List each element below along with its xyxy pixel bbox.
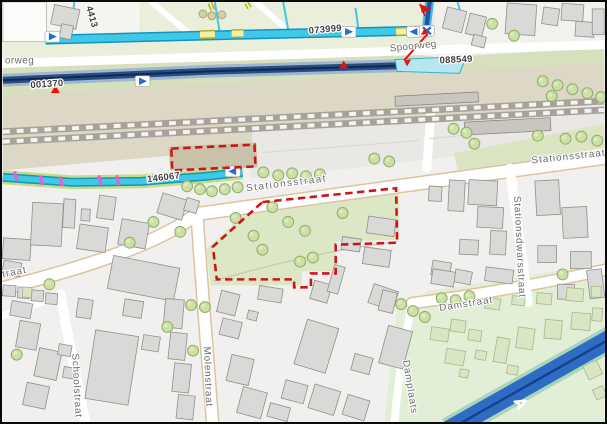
building — [59, 24, 74, 40]
tree-icon — [199, 302, 210, 313]
building — [10, 300, 33, 318]
building — [85, 330, 139, 405]
tree-highlight — [302, 227, 306, 231]
tree-highlight — [339, 210, 343, 214]
tree-icon — [369, 153, 380, 164]
tree-icon — [396, 299, 407, 310]
flow-arrow-icon — [341, 26, 356, 37]
tree-highlight — [598, 94, 602, 98]
tree-highlight — [584, 90, 588, 94]
building — [444, 348, 465, 366]
building — [351, 353, 374, 374]
tree-highlight — [463, 129, 467, 133]
tree-icon — [469, 138, 480, 149]
tree-highlight — [559, 271, 563, 275]
tree-highlight — [201, 304, 205, 308]
building — [141, 335, 160, 352]
tree-icon — [148, 216, 159, 227]
building — [308, 384, 341, 416]
tree-highlight — [208, 188, 212, 192]
tree-icon — [532, 130, 543, 141]
building — [468, 180, 498, 206]
weir-marker — [41, 175, 43, 185]
weir-marker — [99, 175, 101, 185]
tree-icon — [509, 30, 520, 41]
building — [63, 199, 76, 228]
waterway-id-label: 088549 — [439, 53, 473, 66]
tree-highlight — [371, 155, 375, 159]
building — [267, 403, 291, 422]
tree-icon — [461, 127, 472, 138]
building — [448, 180, 465, 211]
building — [342, 394, 370, 421]
building — [575, 21, 595, 37]
tree-icon — [552, 80, 563, 91]
tree-icon — [384, 156, 395, 167]
tree-icon — [248, 230, 259, 241]
building — [22, 287, 32, 298]
street-label: Schoolstraat — [69, 353, 83, 418]
tree-highlight — [190, 347, 194, 351]
building — [468, 329, 482, 342]
tree-highlight — [386, 158, 390, 162]
building — [562, 206, 588, 238]
tree-highlight — [554, 82, 558, 86]
tree-icon — [592, 135, 603, 146]
tree-highlight — [197, 186, 201, 190]
building — [505, 3, 537, 36]
building — [430, 327, 449, 342]
weir-marker — [15, 171, 17, 181]
building — [176, 394, 195, 419]
building — [538, 246, 557, 263]
tree-highlight — [562, 135, 566, 139]
building — [123, 299, 144, 319]
tree-highlight — [539, 78, 543, 82]
tree-highlight — [260, 169, 264, 173]
building — [226, 354, 254, 385]
building — [490, 230, 507, 255]
tree-icon — [219, 184, 230, 195]
tree-icon — [408, 306, 419, 317]
tree-icon — [188, 345, 199, 356]
map-canvas[interactable]: orweg0013704413073999Spoorweg08854914606… — [2, 2, 605, 422]
building — [592, 308, 603, 322]
tree-icon — [295, 256, 306, 267]
bush-icon — [218, 11, 226, 19]
tree-highlight — [188, 302, 192, 306]
building — [450, 319, 466, 333]
building — [81, 209, 91, 221]
tree-icon — [232, 182, 243, 193]
tree-icon — [337, 208, 348, 219]
building — [16, 320, 41, 350]
tree-icon — [567, 84, 578, 95]
building — [76, 298, 93, 319]
building — [45, 293, 58, 305]
tree-icon — [186, 300, 197, 311]
tree-highlight — [269, 204, 273, 208]
tree-icon — [582, 88, 593, 99]
map-viewport[interactable]: orweg0013704413073999Spoorweg08854914606… — [0, 0, 607, 424]
tree-highlight — [594, 137, 598, 141]
building — [77, 224, 109, 253]
tree-highlight — [289, 170, 293, 174]
tree-icon — [175, 226, 186, 237]
tree-highlight — [471, 140, 475, 144]
building — [535, 180, 561, 216]
building — [157, 193, 188, 220]
tree-icon — [195, 184, 206, 195]
tree-icon — [537, 76, 548, 87]
tree-icon — [182, 181, 193, 192]
tree-highlight — [409, 308, 413, 312]
building — [172, 363, 192, 393]
building — [2, 238, 31, 261]
tree-highlight — [177, 228, 181, 232]
tree-highlight — [250, 232, 254, 236]
tree-icon — [267, 202, 278, 213]
street-label: Molenstraat — [201, 346, 214, 407]
building — [544, 319, 562, 339]
flow-arrow-icon — [45, 31, 60, 42]
tree-icon — [448, 123, 459, 134]
building — [591, 286, 601, 297]
tree-highlight — [150, 218, 154, 222]
building — [485, 267, 514, 284]
street-label: orweg — [5, 55, 34, 66]
tree-highlight — [234, 184, 238, 188]
building — [475, 350, 487, 361]
bush-icon — [208, 12, 216, 20]
tree-icon — [487, 18, 498, 29]
building — [247, 310, 259, 321]
building — [542, 7, 560, 26]
tree-icon — [560, 133, 571, 144]
tree-icon — [419, 312, 430, 323]
building — [219, 318, 242, 339]
weir-marker — [60, 176, 62, 186]
tree-highlight — [184, 183, 188, 187]
building — [2, 285, 16, 297]
tree-highlight — [126, 239, 130, 243]
tree-highlight — [466, 293, 470, 297]
tree-icon — [257, 244, 268, 255]
building — [362, 247, 391, 267]
tree-highlight — [309, 254, 313, 258]
building — [107, 255, 180, 301]
tree-icon — [546, 91, 557, 102]
building — [566, 288, 584, 302]
tree-highlight — [13, 351, 17, 355]
building — [294, 319, 339, 373]
building — [516, 327, 536, 350]
weir-marker — [117, 175, 119, 185]
tree-highlight — [438, 295, 442, 299]
tree-icon — [576, 131, 587, 142]
flow-arrow-icon — [135, 76, 150, 87]
building — [23, 382, 50, 409]
tree-icon — [307, 252, 318, 263]
building — [592, 9, 604, 35]
building — [257, 286, 283, 303]
tree-highlight — [285, 218, 289, 222]
tree-highlight — [46, 281, 50, 285]
tree-highlight — [421, 314, 425, 318]
tree-highlight — [259, 246, 263, 250]
tree-highlight — [221, 186, 225, 190]
building — [168, 332, 188, 360]
tree-highlight — [450, 125, 454, 129]
building — [536, 293, 552, 305]
tree-highlight — [164, 323, 168, 327]
building — [428, 186, 442, 202]
tree-highlight — [398, 301, 402, 305]
building — [216, 290, 240, 316]
building — [3, 2, 47, 42]
building — [281, 380, 308, 404]
tree-icon — [162, 321, 173, 332]
tree-icon — [300, 225, 311, 236]
waterway-id-label: 001370 — [30, 77, 64, 90]
tree-icon — [557, 269, 568, 280]
building — [571, 312, 591, 330]
tree-icon — [44, 279, 55, 290]
building — [506, 365, 518, 376]
building — [237, 387, 268, 419]
tree-highlight — [489, 20, 493, 24]
building — [431, 269, 456, 287]
tree-icon — [283, 216, 294, 227]
building — [477, 206, 504, 228]
tree-highlight — [275, 172, 279, 176]
building — [570, 252, 591, 269]
building — [96, 195, 116, 220]
building — [366, 216, 396, 237]
building — [459, 239, 479, 255]
tree-icon — [11, 349, 22, 360]
building — [561, 3, 584, 21]
tree-highlight — [534, 132, 538, 136]
tree-highlight — [578, 133, 582, 137]
tree-icon — [258, 167, 269, 178]
tree-highlight — [569, 86, 573, 90]
tree-icon — [124, 237, 135, 248]
tree-highlight — [511, 32, 515, 36]
tree-highlight — [297, 258, 301, 262]
building — [459, 369, 469, 378]
building — [31, 290, 44, 302]
tree-highlight — [548, 93, 552, 97]
bush-icon — [199, 10, 207, 18]
tree-highlight — [232, 214, 236, 218]
building — [453, 269, 472, 285]
tree-icon — [206, 186, 217, 197]
building — [30, 202, 63, 246]
